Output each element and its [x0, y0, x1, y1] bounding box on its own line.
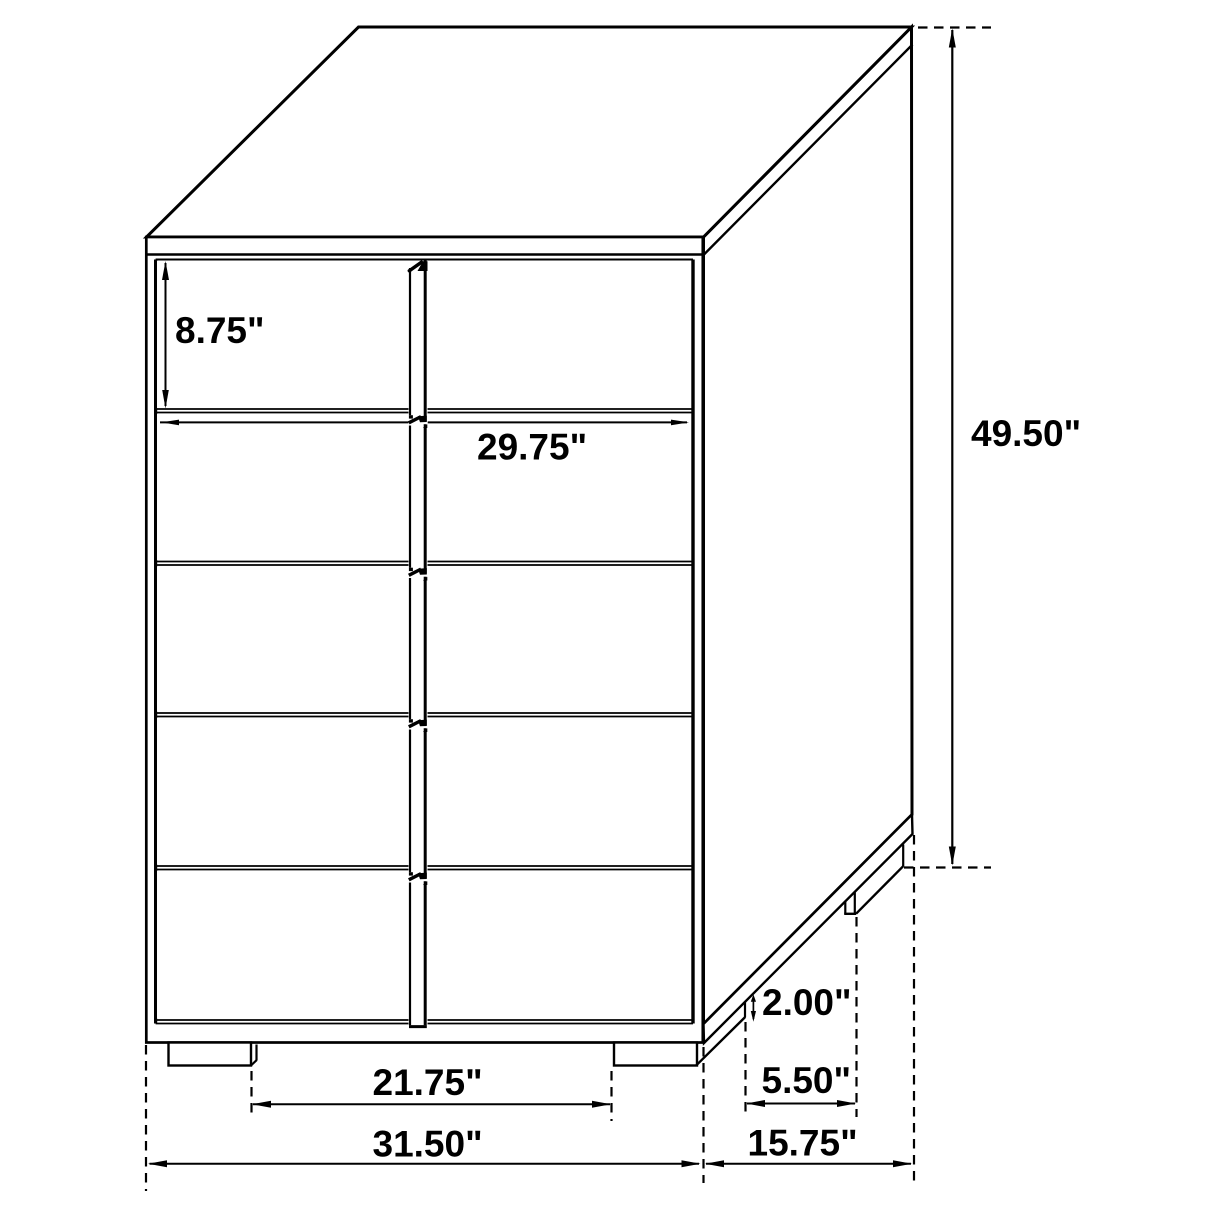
svg-text:31.50": 31.50"	[373, 1124, 483, 1165]
svg-text:21.75": 21.75"	[373, 1062, 483, 1103]
svg-text:5.50": 5.50"	[762, 1060, 852, 1101]
svg-text:49.50": 49.50"	[971, 413, 1081, 454]
svg-text:8.75": 8.75"	[175, 310, 265, 351]
svg-text:15.75": 15.75"	[748, 1123, 858, 1164]
svg-text:29.75": 29.75"	[477, 427, 587, 468]
svg-text:2.00": 2.00"	[762, 982, 852, 1023]
